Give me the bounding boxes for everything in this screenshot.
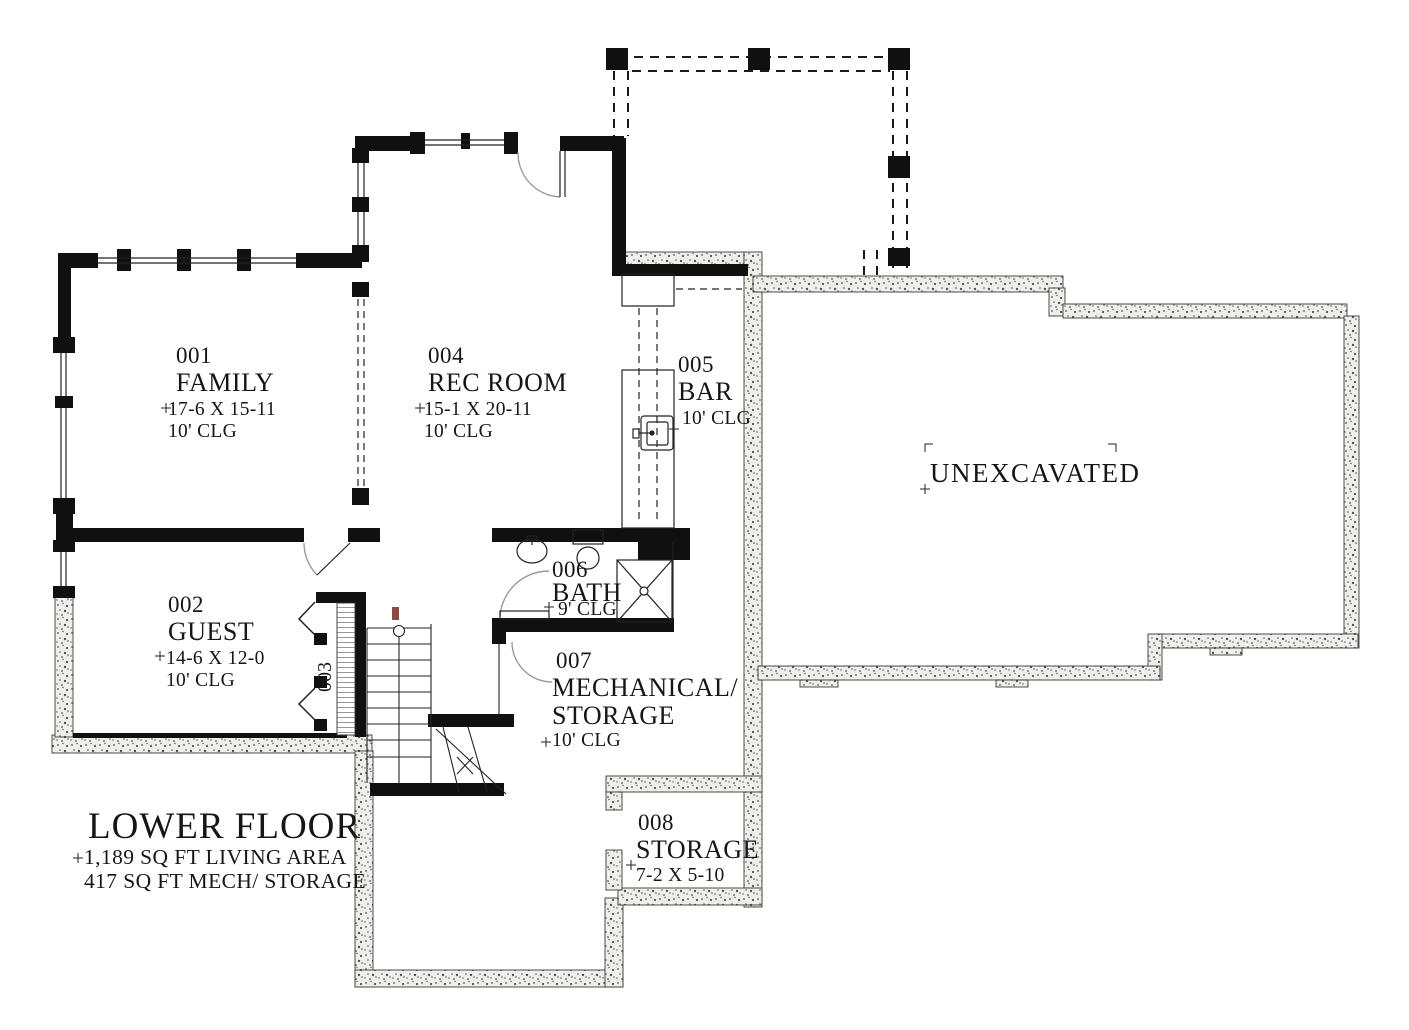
room-ceiling: 10' CLG [168,421,237,442]
room-label-rec: 004 REC ROOM 15-1 X 20-11 10' CLG [424,343,567,442]
room-dims: 15-1 X 20-11 [424,399,532,420]
room-dims: 7-2 X 5-10 [636,865,725,886]
room-label-bath: 006 BATH 9' CLG [552,557,622,620]
room-label-guest: 002 GUEST 14-6 X 12-0 10' CLG [166,592,265,691]
room-label-storage: 008 STORAGE 7-2 X 5-10 [636,810,759,886]
room-dims: 14-6 X 12-0 [166,648,265,669]
room-ceiling: 10' CLG [424,421,493,442]
chase [638,528,690,560]
room-number: 005 [678,352,714,377]
bifold-door [299,688,315,720]
deck-post [888,156,910,178]
room-name: GUEST [168,617,254,646]
room-name: BAR [678,377,733,406]
room-name-1: MECHANICAL/ [552,673,738,702]
room-ceiling: 10' CLG [682,408,751,429]
title-block: LOWER FLOOR 1,189 SQ FT LIVING AREA 417 … [84,806,366,893]
room-number: 004 [428,343,464,368]
plan-area-2: 417 SQ FT MECH/ STORAGE [84,869,366,893]
column-line [358,299,364,488]
footing-tick [1210,648,1242,655]
deck-posts [606,48,910,266]
room-name: FAMILY [176,368,274,397]
room-ceiling: 10' CLG [166,670,235,691]
unexcavated-label: UNEXCAVATED [930,458,1141,488]
labels: 001 FAMILY 17-6 X 15-11 10' CLG 004 REC … [84,343,1141,893]
floorplan-sheet: 001 FAMILY 17-6 X 15-11 10' CLG 004 REC … [0,0,1409,1030]
room-number: 001 [176,343,212,368]
room-label-mech: 007 MECHANICAL/ STORAGE 10' CLG [552,648,738,751]
bar-counter [622,370,674,528]
deck-post [748,48,770,70]
bifold-door [299,602,315,635]
room-name: STORAGE [636,835,759,864]
deck-post [888,248,910,266]
bath-door-arc [500,571,549,616]
room-number: 002 [168,592,204,617]
rec-entry-door-arc [518,152,560,197]
room-label-closet: 003 [314,662,336,692]
room-name: REC ROOM [428,368,567,397]
plan-title: LOWER FLOOR [88,806,361,847]
footing-tick [800,680,838,687]
room-ceiling: 9' CLG [558,599,617,620]
label-bracket [925,444,1116,452]
deck-above-outline [614,57,907,276]
room-label-family: 001 FAMILY 17-6 X 15-11 10' CLG [168,343,276,442]
detector-mark [392,607,399,620]
room-label-bar: 005 BAR 10' CLG [678,352,751,429]
plan-area-1: 1,189 SQ FT LIVING AREA [84,845,347,869]
bar-upper-cabinet [622,274,674,306]
room-number: 007 [556,648,592,673]
bath-door-leaf [500,611,549,619]
room-dims: 17-6 X 15-11 [168,399,276,420]
deck-post [606,48,628,70]
footing-tick [996,680,1028,687]
guest-door-arc [304,543,317,575]
guest-door-leaf [317,543,350,575]
room-number: 008 [638,810,674,835]
mech-door-arc [512,642,552,682]
floor-plan-canvas: 001 FAMILY 17-6 X 15-11 10' CLG 004 REC … [0,0,1409,1030]
room-ceiling: 10' CLG [552,730,621,751]
room-name-2: STORAGE [552,701,675,730]
deck-post [888,48,910,70]
